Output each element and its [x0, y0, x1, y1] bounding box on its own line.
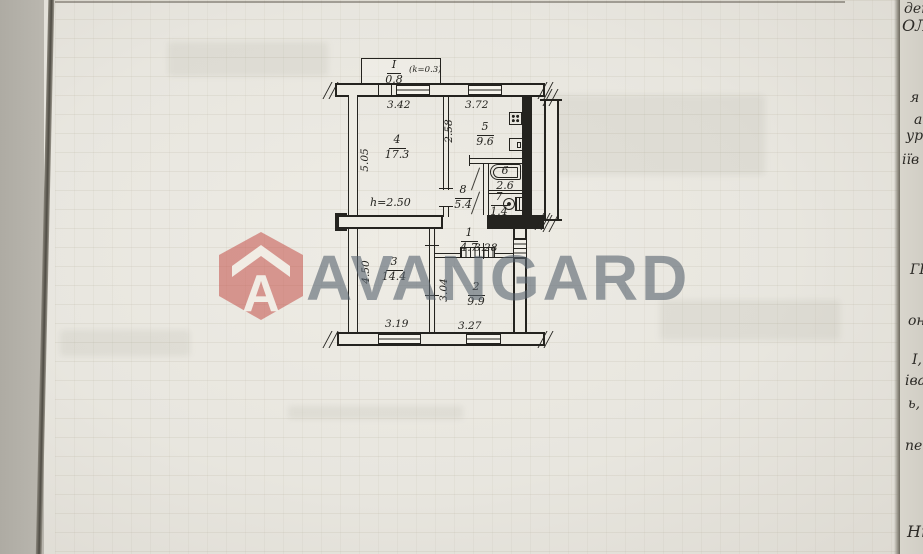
window-room2	[466, 334, 501, 344]
edge-text-fragment: дек	[904, 1, 923, 17]
wall-middle-left	[337, 215, 443, 229]
door-jamb-tick	[469, 155, 470, 166]
room-number: 3	[386, 256, 403, 271]
room-label-5: 5 9.6	[470, 121, 500, 148]
room-area: 9.6	[470, 136, 500, 149]
edge-text-fragment: он.	[908, 313, 923, 329]
door-jamb-tick	[425, 245, 439, 246]
wall-corridor-outer	[544, 100, 559, 221]
wall-kitchen-right	[522, 95, 532, 217]
room-number: 6	[497, 165, 514, 180]
wall-bottom	[337, 332, 545, 346]
dim-left-lower: 4.50	[360, 258, 372, 286]
room-number: 2	[468, 281, 485, 296]
dim-kitchen-left: 2.58	[443, 117, 455, 145]
balcony-number: I	[387, 59, 401, 74]
balcony-door-jamb	[391, 83, 392, 97]
page-top-rule	[55, 1, 845, 3]
edge-text-fragment: ур	[906, 128, 923, 144]
bleedthrough-smudge	[60, 330, 190, 356]
room-label-4: 4 17.3	[379, 134, 415, 161]
dim-bottom-left: 3.19	[385, 318, 408, 330]
bleedthrough-smudge	[660, 300, 840, 340]
window-room4	[396, 85, 430, 95]
room-label-7: 7 1.4	[486, 191, 512, 218]
dim-room2-left: 3.04	[438, 276, 450, 304]
balcony-coefficient-note: (k=0.3)	[409, 65, 441, 75]
door-jamb-tick	[425, 295, 439, 296]
room-number: 4	[389, 134, 406, 149]
floor-plan: I 0.8 (k=0.3)	[333, 55, 565, 355]
room-area: 5.4	[448, 199, 478, 212]
edge-text-fragment: пе	[905, 438, 922, 454]
edge-text-fragment: ас	[914, 112, 923, 128]
room-area: 9.9	[461, 296, 491, 309]
wall-top	[335, 83, 545, 97]
dim-left-upper: 5.05	[359, 146, 371, 174]
dim-bottom-right: 3.27	[458, 320, 481, 332]
room-number: 1	[461, 227, 478, 242]
room-area: 17.3	[379, 149, 415, 162]
entrance-door	[513, 238, 527, 259]
room-label-8: 8 5.4	[448, 184, 478, 211]
sink-icon	[509, 138, 523, 151]
room-area: 1.4	[486, 206, 512, 219]
room-label-3: 3 14.4	[376, 256, 412, 283]
room-area: 14.4	[376, 271, 412, 284]
window-room3	[378, 334, 421, 344]
ceiling-height-note: h=2.50	[370, 196, 411, 209]
edge-text-fragment: ОЛ	[902, 16, 923, 35]
bleedthrough-smudge	[288, 406, 463, 419]
room-label-2: 2 9.9	[461, 281, 491, 308]
bleedthrough-smudge	[168, 42, 328, 76]
room-number: 7	[491, 191, 508, 206]
stove-icon	[509, 112, 522, 125]
dim-top-right: 3.72	[465, 99, 488, 111]
edge-text-fragment: іва	[905, 373, 923, 389]
dim-top-left: 3.42	[387, 99, 410, 111]
edge-text-fragment: І,	[912, 352, 922, 368]
edge-text-fragment: Нн	[907, 522, 923, 541]
scanned-document: дек ОЛ я ас ур іїв ГБ он. І, іва ь, пе Н…	[0, 0, 923, 554]
toilet-tank-icon	[515, 197, 523, 211]
room-number: 5	[477, 121, 494, 136]
edge-text-fragment: ь,	[908, 396, 920, 412]
edge-text-fragment: іїв	[902, 152, 919, 168]
window-kitchen	[468, 85, 502, 95]
edge-text-fragment: я	[910, 90, 919, 106]
bleedthrough-smudge	[545, 95, 765, 175]
edge-text-fragment: ГБ	[910, 262, 923, 278]
balcony-door-jamb	[378, 83, 379, 97]
room-number: 8	[455, 184, 472, 199]
room-label-6: 6 2.6	[492, 165, 518, 192]
dim-hall: 3.28	[474, 242, 497, 254]
page-right-edge-shadow	[894, 0, 900, 554]
